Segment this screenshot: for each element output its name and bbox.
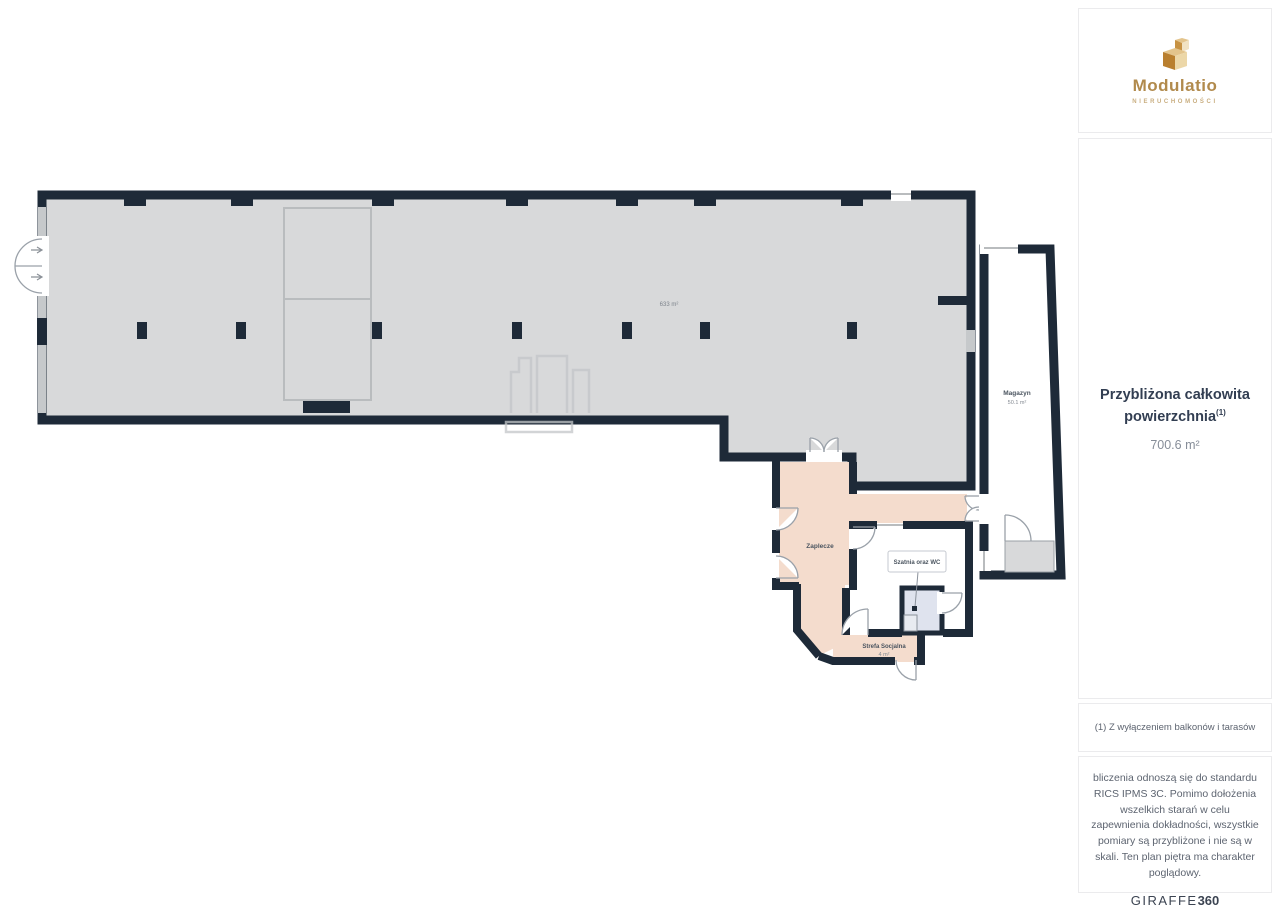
area-summary-title: Przybliżona całkowita powierzchnia(1) [1091, 385, 1259, 427]
giraffe-brand-360: 360 [1198, 893, 1220, 905]
wc-fixture [904, 615, 917, 631]
left-wall-block [37, 318, 47, 345]
strefa-name-label: Strefa Socjalna [862, 644, 906, 650]
logo-wordmark: Modulatio [1133, 76, 1218, 96]
giraffe-brand-text: GIRAFFE [1131, 893, 1198, 905]
page: 633 m² Magazyn 50.1 m² Zaplecze Szatnia … [0, 0, 1280, 905]
hall-area-label: 633 m² [660, 302, 679, 308]
area-summary-superscript: (1) [1216, 408, 1226, 417]
area-summary-title-text: Przybliżona całkowita powierzchnia [1100, 387, 1250, 424]
total-area-value: 700.6 m² [1150, 438, 1199, 452]
giraffe360-brand: GIRAFFE360 [1091, 893, 1259, 905]
disclaimer-text: bliczenia odnoszą się do standardu RICS … [1091, 771, 1259, 881]
exit-door-arc [896, 660, 916, 680]
magazyn-area-label: 50.1 m² [1008, 400, 1027, 406]
disclaimer-card: bliczenia odnoszą się do standardu RICS … [1078, 756, 1272, 893]
corridor [849, 494, 967, 523]
footnote-card: (1) Z wyłączeniem balkonów i tarasów [1078, 703, 1272, 752]
magazyn-name-label: Magazyn [1003, 390, 1030, 397]
area-summary-card: Przybliżona całkowita powierzchnia(1) 70… [1078, 138, 1272, 699]
sidebar: Modulatio NIERUCHOMOŚCI Przybliżona całk… [1078, 0, 1274, 905]
logo-subtitle: NIERUCHOMOŚCI [1132, 99, 1217, 105]
strefa-area-label: 4 m² [879, 652, 890, 658]
logo-card: Modulatio NIERUCHOMOŚCI [1078, 8, 1272, 133]
zaplecze-name-label: Zaplecze [806, 543, 834, 550]
footnote-text: (1) Z wyłączeniem balkonów i tarasów [1095, 722, 1256, 733]
modulatio-logo-icon [1155, 36, 1195, 72]
szatnia-name-label: Szatnia oraz WC [894, 560, 941, 566]
wall-stub [938, 296, 971, 305]
magazyn-vestibule [1005, 541, 1054, 572]
left-wall-window [38, 345, 46, 413]
right-wall-panel [966, 330, 975, 352]
